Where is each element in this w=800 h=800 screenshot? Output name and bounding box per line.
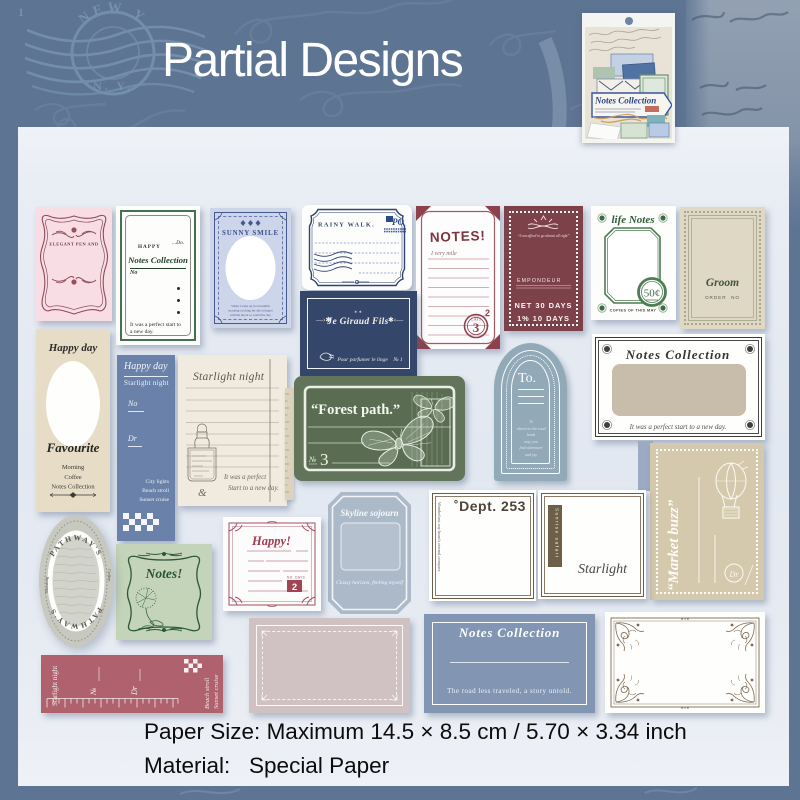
svg-text:“Market buzz”: “Market buzz” xyxy=(666,499,682,591)
svg-text:❦❧❦: ❦❧❦ xyxy=(681,617,690,621)
svg-text:I very mile: I very mile xyxy=(430,251,457,257)
svg-text:Skyline sojourn: Skyline sojourn xyxy=(340,508,398,518)
svg-text:2: 2 xyxy=(292,582,297,593)
svg-text:1: 1 xyxy=(18,5,24,19)
svg-text:3: 3 xyxy=(473,320,480,335)
svg-text:It was a perfect: It was a perfect xyxy=(223,474,267,481)
svg-text:NET 30 DAYS: NET 30 DAYS xyxy=(515,301,573,310)
svg-text:Coffee: Coffee xyxy=(107,569,112,581)
svg-text:Je Giraud Fils: Je Giraud Fils xyxy=(326,317,388,327)
svg-text:Notes!: Notes! xyxy=(145,566,183,581)
svg-text:“Forest path.”: “Forest path.” xyxy=(311,402,400,418)
svg-text:Morning: Morning xyxy=(62,464,85,471)
svg-text:with the mood so would the day: with the mood so would the day. xyxy=(230,313,272,317)
svg-text:Favourite: Favourite xyxy=(46,440,100,455)
svg-text:Starlight night: Starlight night xyxy=(51,666,59,706)
svg-text:1% 10 DAYS: 1% 10 DAYS xyxy=(517,314,570,323)
svg-text:∗ ∗: ∗ ∗ xyxy=(354,309,362,314)
svg-text:It was a perfect start to a ne: It was a perfect start to a new day. xyxy=(629,423,727,431)
svg-text:life Notes: life Notes xyxy=(611,214,654,226)
svg-text:CATS: CATS xyxy=(470,317,482,322)
svg-text:3: 3 xyxy=(320,450,329,469)
svg-text:NO. DAYS: NO. DAYS xyxy=(287,576,305,580)
svg-text:№: № xyxy=(89,687,98,696)
svg-text:Starlight night: Starlight night xyxy=(193,371,265,383)
svg-text:EMPONDEUR: EMPONDEUR xyxy=(517,278,562,284)
svg-text:Notes Collection: Notes Collection xyxy=(51,484,95,491)
svg-text:ELEGANT PEN AND: ELEGANT PEN AND xyxy=(49,242,98,247)
svg-text:✱‹—: ✱‹— xyxy=(388,316,404,324)
svg-text:COPIES OF THIS MAY: COPIES OF THIS MAY xyxy=(610,309,657,313)
svg-text:When I wake up in a beautiful: When I wake up in a beautiful xyxy=(231,304,270,308)
svg-text:Dr: Dr xyxy=(130,685,139,696)
svg-text:Notes Collection: Notes Collection xyxy=(594,96,656,106)
svg-text:❦❧❦: ❦❧❦ xyxy=(681,706,690,710)
svg-text:2: 2 xyxy=(485,308,490,318)
svg-text:NEW Y: NEW Y xyxy=(76,0,149,27)
svg-text:Dr: Dr xyxy=(729,570,740,579)
svg-text:SUNNY SMILE: SUNNY SMILE xyxy=(222,229,279,237)
svg-text:NOTES!: NOTES! xyxy=(430,228,486,245)
svg-text:Sunset cruise: Sunset cruise xyxy=(213,674,220,709)
svg-text:&: & xyxy=(198,487,207,499)
svg-text:№: № xyxy=(308,455,317,464)
svg-text:“I can afford to go almost all: “I can afford to go almost all right” xyxy=(517,233,569,238)
svg-text:N. Y.: N. Y. xyxy=(93,79,133,93)
svg-text:Classy horizon, feeling myself: Classy horizon, feeling myself xyxy=(336,579,405,586)
svg-text:RAINY WALK.: RAINY WALK. xyxy=(318,222,375,229)
svg-text:Start to a new day.: Start to a new day. xyxy=(228,485,279,492)
svg-text:Morning: Morning xyxy=(44,576,49,593)
svg-text:Pour parfumer le linge № 1: Pour parfumer le linge № 1 xyxy=(336,356,403,363)
svg-text:50¢: 50¢ xyxy=(644,288,661,300)
svg-text:PO: PO xyxy=(392,217,404,227)
svg-text:Happy!: Happy! xyxy=(251,534,291,548)
svg-text:Notes Collection: Notes Collection xyxy=(625,347,730,362)
svg-text:morning catching the sky is ti: morning catching the sky is tinged xyxy=(229,309,273,313)
svg-text:Coffee: Coffee xyxy=(64,474,81,481)
svg-text:Beach stroll: Beach stroll xyxy=(204,677,211,709)
